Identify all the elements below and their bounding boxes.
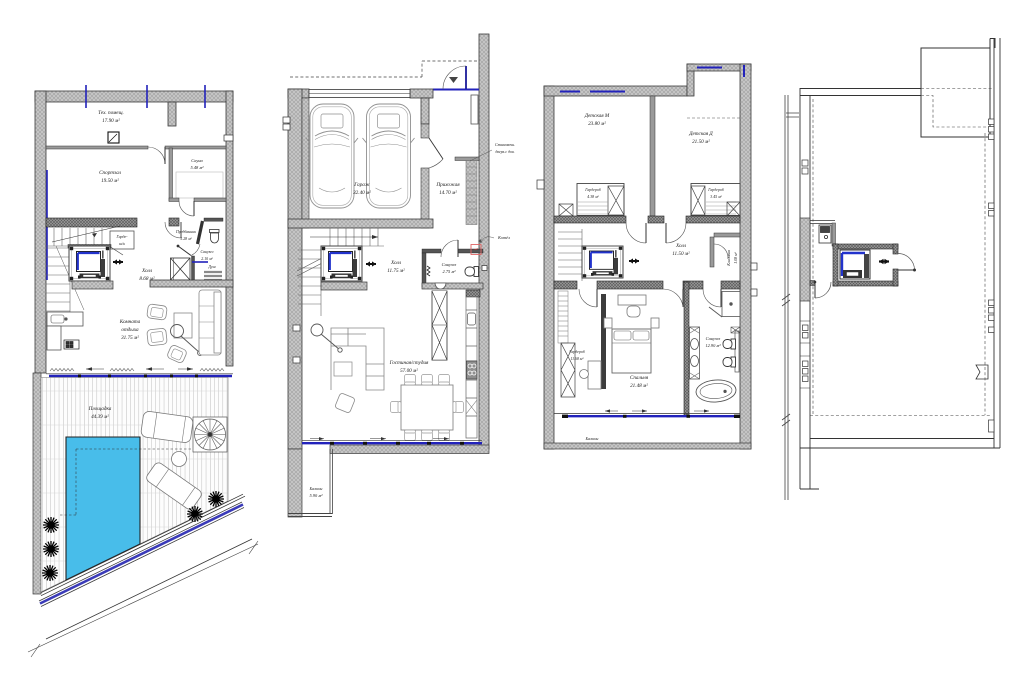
svg-text:19.50 м²: 19.50 м² (101, 178, 119, 184)
svg-text:5.28 м²: 5.28 м² (180, 237, 192, 241)
svg-text:Тех. помещ.: Тех. помещ. (98, 110, 124, 116)
svg-text:21.50 м²: 21.50 м² (692, 139, 710, 145)
svg-text:Комната: Комната (119, 319, 141, 325)
svg-text:Холл: Холл (675, 243, 687, 249)
svg-text:Гардероб: Гардероб (707, 188, 725, 192)
svg-text:23.80 м²: 23.80 м² (588, 121, 606, 127)
svg-text:Балкон: Балкон (309, 486, 324, 491)
svg-text:11.50 м²: 11.50 м² (672, 251, 690, 257)
svg-text:1.08 м²: 1.08 м² (734, 251, 738, 263)
svg-text:Детская Д: Детская Д (688, 131, 713, 137)
svg-text:2.75 м²: 2.75 м² (443, 269, 457, 274)
svg-text:3.45 м²: 3.45 м² (710, 195, 722, 199)
svg-text:4.38 м²: 4.38 м² (587, 195, 599, 199)
svg-text:ш/к: ш/к (119, 242, 125, 246)
svg-text:Предбанник: Предбанник (175, 230, 196, 234)
svg-text:Площадка: Площадка (88, 405, 112, 412)
svg-text:Балкон: Балкон (585, 436, 600, 441)
svg-text:Спортзал: Спортзал (99, 170, 122, 176)
svg-text:5.90 м²: 5.90 м² (310, 493, 324, 498)
svg-text:Кладовая: Кладовая (727, 250, 731, 267)
svg-text:Санузел: Санузел (200, 250, 213, 254)
svg-text:5.48 м²: 5.48 м² (191, 165, 205, 170)
svg-text:11.75 м²: 11.75 м² (387, 268, 405, 274)
svg-text:Спальня: Спальня (630, 375, 649, 381)
svg-text:31.75 м²: 31.75 м² (121, 335, 139, 341)
svg-text:отдыха: отдыха (121, 326, 139, 333)
svg-text:Гараж: Гараж (353, 182, 370, 188)
svg-text:Детская М: Детская М (584, 113, 610, 119)
svg-text:14.70 м²: 14.70 м² (439, 189, 457, 196)
svg-text:Санузел: Санузел (442, 262, 457, 267)
svg-text:44.39 м²: 44.39 м² (91, 413, 109, 420)
svg-text:дверь с дов.: дверь с дов. (495, 150, 514, 154)
svg-text:Гостиная/студия: Гостиная/студия (389, 359, 429, 366)
svg-text:12.90 м²: 12.90 м² (705, 343, 721, 348)
svg-text:Холл: Холл (390, 260, 402, 266)
svg-text:Стыковочн.: Стыковочн. (495, 143, 515, 147)
svg-text:Санузел: Санузел (706, 336, 721, 341)
svg-text:Гардероб: Гардероб (584, 188, 602, 192)
svg-text:57.00 м²: 57.00 м² (400, 368, 418, 374)
svg-text:Душ: Душ (207, 265, 215, 269)
svg-text:17.90 м²: 17.90 м² (102, 118, 120, 124)
svg-text:21.48 м²: 21.48 м² (630, 382, 648, 389)
svg-text:Прихожая: Прихожая (435, 182, 460, 188)
svg-text:11.68 м²: 11.68 м² (570, 357, 584, 361)
svg-text:Котёл: Котёл (497, 235, 510, 240)
svg-text:Холл: Холл (141, 268, 153, 274)
svg-text:32.40 м²: 32.40 м² (353, 189, 371, 196)
svg-text:2.10 м²: 2.10 м² (201, 257, 213, 261)
svg-text:Гарде-: Гарде- (116, 235, 129, 239)
svg-text:Сауна: Сауна (191, 158, 203, 163)
